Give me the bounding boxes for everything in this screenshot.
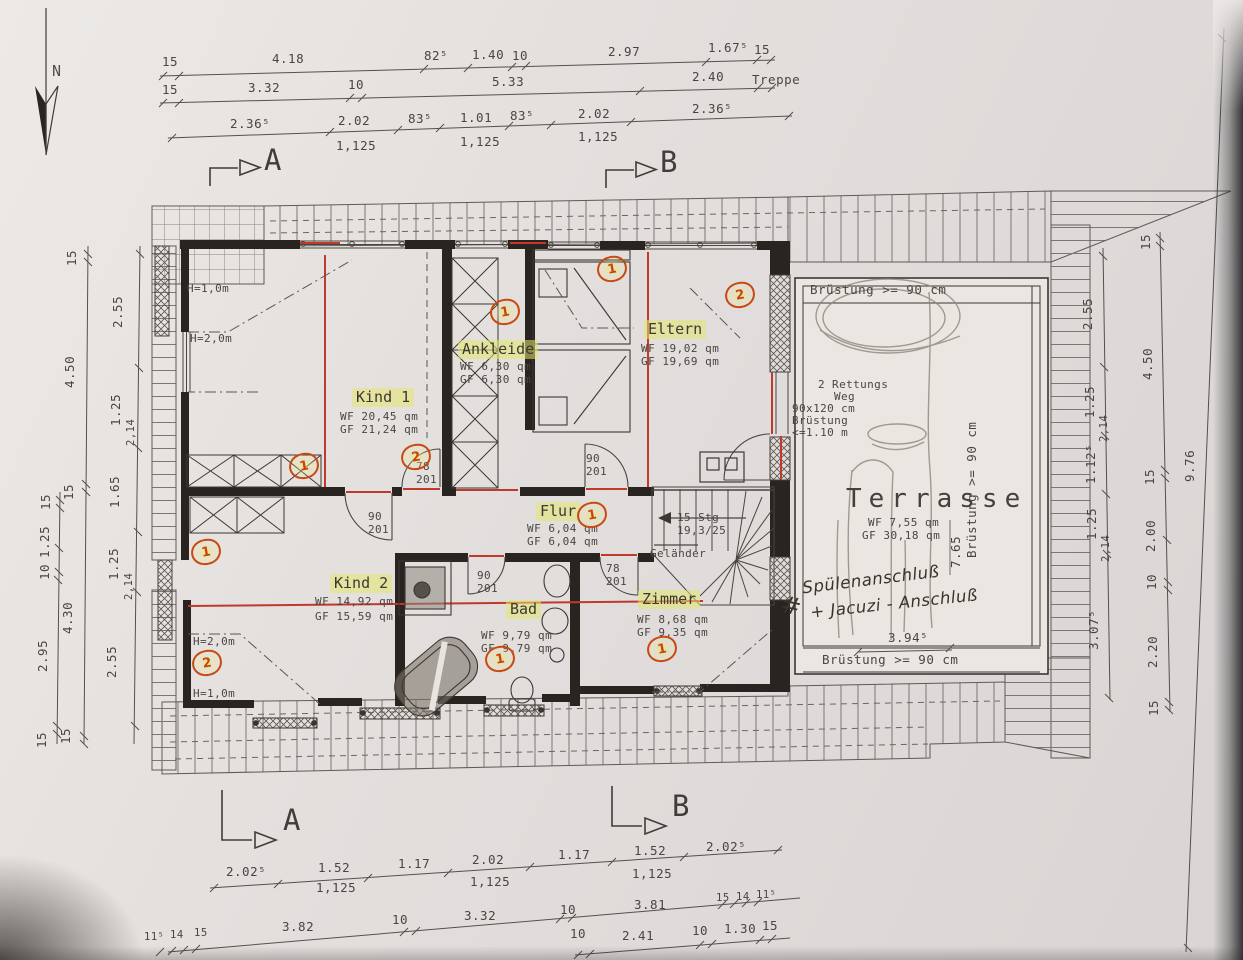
room-area: GF 19,69 qm: [641, 356, 719, 367]
dim-label: 3.32: [464, 910, 496, 923]
rescue-note: Weg: [834, 391, 855, 402]
door-size: 201: [416, 474, 437, 485]
dim-label: 82⁵: [424, 50, 448, 63]
dim-label: 4.50: [1142, 348, 1155, 380]
treppe-note: Treppe: [752, 74, 800, 87]
dim-label: 9.76: [1184, 450, 1197, 482]
dim-label: 15: [63, 484, 76, 500]
dim-label: 5.33: [492, 76, 524, 89]
rescue-note: Brüstung: [792, 415, 848, 426]
north-arrow-icon: [35, 8, 58, 155]
dim-label: 10: [392, 914, 408, 927]
dim-sub: 1,125: [578, 131, 618, 144]
wardrobe-kind2: [190, 497, 284, 533]
dim-tie: 2,14: [126, 419, 137, 446]
dim-sub: 1,125: [470, 876, 510, 889]
dim-label: 1.52: [318, 862, 350, 875]
dim-label: 15: [1148, 700, 1161, 716]
parapet-label-right: Brüstung >= 90 cm: [966, 422, 979, 558]
dim-label: 1.30: [724, 923, 756, 936]
dim-label: 2.55: [1082, 298, 1095, 330]
dim-label: 15: [66, 250, 79, 266]
dim-label: 2.02⁵: [226, 866, 266, 879]
section-b-bottom: B: [672, 792, 689, 821]
door-size: 201: [368, 524, 389, 535]
room-label-terrasse: Terrasse: [842, 484, 1031, 515]
dim-label: 10: [39, 564, 52, 580]
dim-label: 1.25: [110, 394, 123, 426]
room-label-bad: Bad: [506, 600, 541, 619]
dim-label: 1.12⁵: [1085, 444, 1098, 484]
dim-sub: 1,125: [316, 882, 356, 895]
dim-sub: 1,125: [336, 140, 376, 153]
room-label-kind1: Kind 1: [352, 388, 414, 407]
dim-label: 1.25: [1084, 386, 1097, 418]
room-area: WF 20,45 qm: [340, 411, 418, 422]
dim-label: 10: [512, 50, 528, 63]
room-area: WF 7,55 qm: [868, 517, 939, 528]
dim-label: 4.30: [62, 602, 75, 634]
dim-label: 15: [60, 728, 73, 744]
dim-label: 15: [716, 893, 730, 904]
dim-label: 2.02⁵: [706, 841, 746, 854]
dim-label: 2.55: [106, 646, 119, 678]
room-area: WF 8,68 qm: [637, 614, 708, 625]
dim-label: 2.02: [578, 108, 610, 121]
dim-label: 2.97: [608, 46, 640, 59]
room-label-kind2: Kind 2: [330, 574, 392, 593]
dim-label: 1.52: [634, 845, 666, 858]
parapet-label-bottom: Brüstung >= 90 cm: [822, 654, 958, 667]
dim-label: 10: [570, 928, 586, 941]
dim-label: 3.81: [634, 899, 666, 912]
dim-label: 1.01: [460, 112, 492, 125]
room-area: WF 19,02 qm: [641, 343, 719, 354]
room-label-eltern: Eltern: [644, 320, 706, 339]
door-size: 90: [586, 453, 600, 464]
dim-label: 83⁵: [510, 110, 534, 123]
dim-label: 1.17: [558, 849, 590, 862]
dim-label: 15: [1144, 469, 1157, 485]
door-size: 90: [477, 570, 491, 581]
door-size: 201: [586, 466, 607, 477]
rescue-note: <=1.10 m: [792, 427, 848, 438]
dim-sub: 1,125: [460, 136, 500, 149]
dim-label: 1.67⁵: [708, 42, 748, 55]
chimney-shaft: [700, 452, 744, 482]
room-area: GF 6,30 qm: [460, 374, 531, 385]
room-area: GF 21,24 qm: [340, 424, 418, 435]
room-area: GF 15,59 qm: [315, 611, 393, 622]
section-a-top: A: [264, 146, 281, 175]
section-a-bottom: A: [283, 806, 300, 835]
room-area: WF 14,92 qm: [315, 596, 393, 607]
door-size: 201: [606, 576, 627, 587]
dim-label: 2.00: [1145, 520, 1158, 552]
dim-tie: 2,14: [1101, 535, 1112, 562]
dim-sub: 1,125: [632, 868, 672, 881]
dim-label: 1.25: [1086, 508, 1099, 540]
north-label: N: [52, 62, 61, 80]
dim-label: 1.40: [472, 49, 504, 62]
dim-label: 2.40: [692, 71, 724, 84]
dim-label: 1.25: [39, 526, 52, 558]
dim-label: 15: [162, 84, 178, 97]
dim-label: 15: [762, 920, 778, 933]
dim-tie: 2,14: [1099, 415, 1110, 442]
dim-label: 2.20: [1147, 636, 1160, 668]
door-size: 90: [368, 511, 382, 522]
plan-drawing: [0, 0, 1243, 960]
room-label-zimmer: Zimmer: [638, 590, 700, 609]
dim-label: 15: [162, 56, 178, 69]
dim-label: 3.32: [248, 82, 280, 95]
dim-label: 10: [1146, 574, 1159, 590]
dim-label: 14: [170, 930, 184, 941]
dim-label: 15: [36, 732, 49, 748]
height-note: H=2,0m: [193, 636, 235, 647]
dim-label: 15: [40, 494, 53, 510]
room-label-ankleide: Ankleide: [458, 340, 538, 359]
dim-label: 2.55: [112, 296, 125, 328]
dim-label: 15: [1140, 234, 1153, 250]
dim-tie: 2,14: [124, 573, 135, 600]
room-area: WF 9,79 qm: [481, 630, 552, 641]
terrace-width-dim: 3.94⁵: [888, 632, 928, 645]
stair-steps-label: 15 Stg: [677, 512, 719, 523]
section-b-top: B: [660, 148, 677, 177]
floor-plan-sheet: N A B A B 15 4.18 82⁵ 1.40 10 2.97 1.67⁵…: [0, 0, 1243, 960]
parapet-label-top: Brüstung >= 90 cm: [810, 284, 946, 297]
height-note: H=1,0m: [193, 688, 235, 699]
dim-label: 3.82: [282, 921, 314, 934]
rescue-note: 2 Rettungs: [818, 379, 888, 390]
dim-label: 83⁵: [408, 113, 432, 126]
dim-label: 15: [754, 44, 770, 57]
terrace-depth-dim: 7.65: [950, 536, 963, 568]
height-note: H=1,0m: [187, 283, 229, 294]
dim-label: 2.36⁵: [692, 103, 732, 116]
height-note: H=2,0m: [190, 333, 232, 344]
dim-label: 3.07⁵: [1088, 610, 1101, 650]
wall-hatched-sections: [155, 246, 790, 640]
door-size: 201: [477, 583, 498, 594]
dim-label: 2.02: [338, 115, 370, 128]
dim-label: 10: [560, 904, 576, 917]
dim-label: 1.17: [398, 858, 430, 871]
dim-label: 1.25: [108, 548, 121, 580]
room-area: WF 6,30 qm: [460, 361, 531, 372]
dim-label: 4.18: [272, 53, 304, 66]
dim-label: 11⁵: [144, 932, 164, 943]
room-area: GF 6,04 qm: [527, 536, 598, 547]
railing-label: Geländer: [650, 548, 706, 559]
dim-label: 11⁵: [756, 890, 776, 901]
dim-label: 2.02: [472, 854, 504, 867]
dim-label: 10: [348, 79, 364, 92]
stair-ratio-label: 19,3/25: [677, 525, 726, 536]
dim-label: 14: [736, 892, 750, 903]
dim-label: 1.65: [109, 476, 122, 508]
door-size: 78: [606, 563, 620, 574]
dim-label: 4.50: [64, 356, 77, 388]
rescue-note: 90x120 cm: [792, 403, 855, 414]
room-label-flur: Flur: [536, 502, 580, 521]
dim-label: 2.36⁵: [230, 118, 270, 131]
dim-label: 2.95: [37, 640, 50, 672]
room-area: GF 9,35 qm: [637, 627, 708, 638]
dim-label: 10: [692, 925, 708, 938]
dim-label: 15: [194, 928, 208, 939]
dim-label: 2.41: [622, 930, 654, 943]
room-area: GF 30,18 qm: [862, 530, 940, 541]
staircase: [652, 487, 774, 605]
